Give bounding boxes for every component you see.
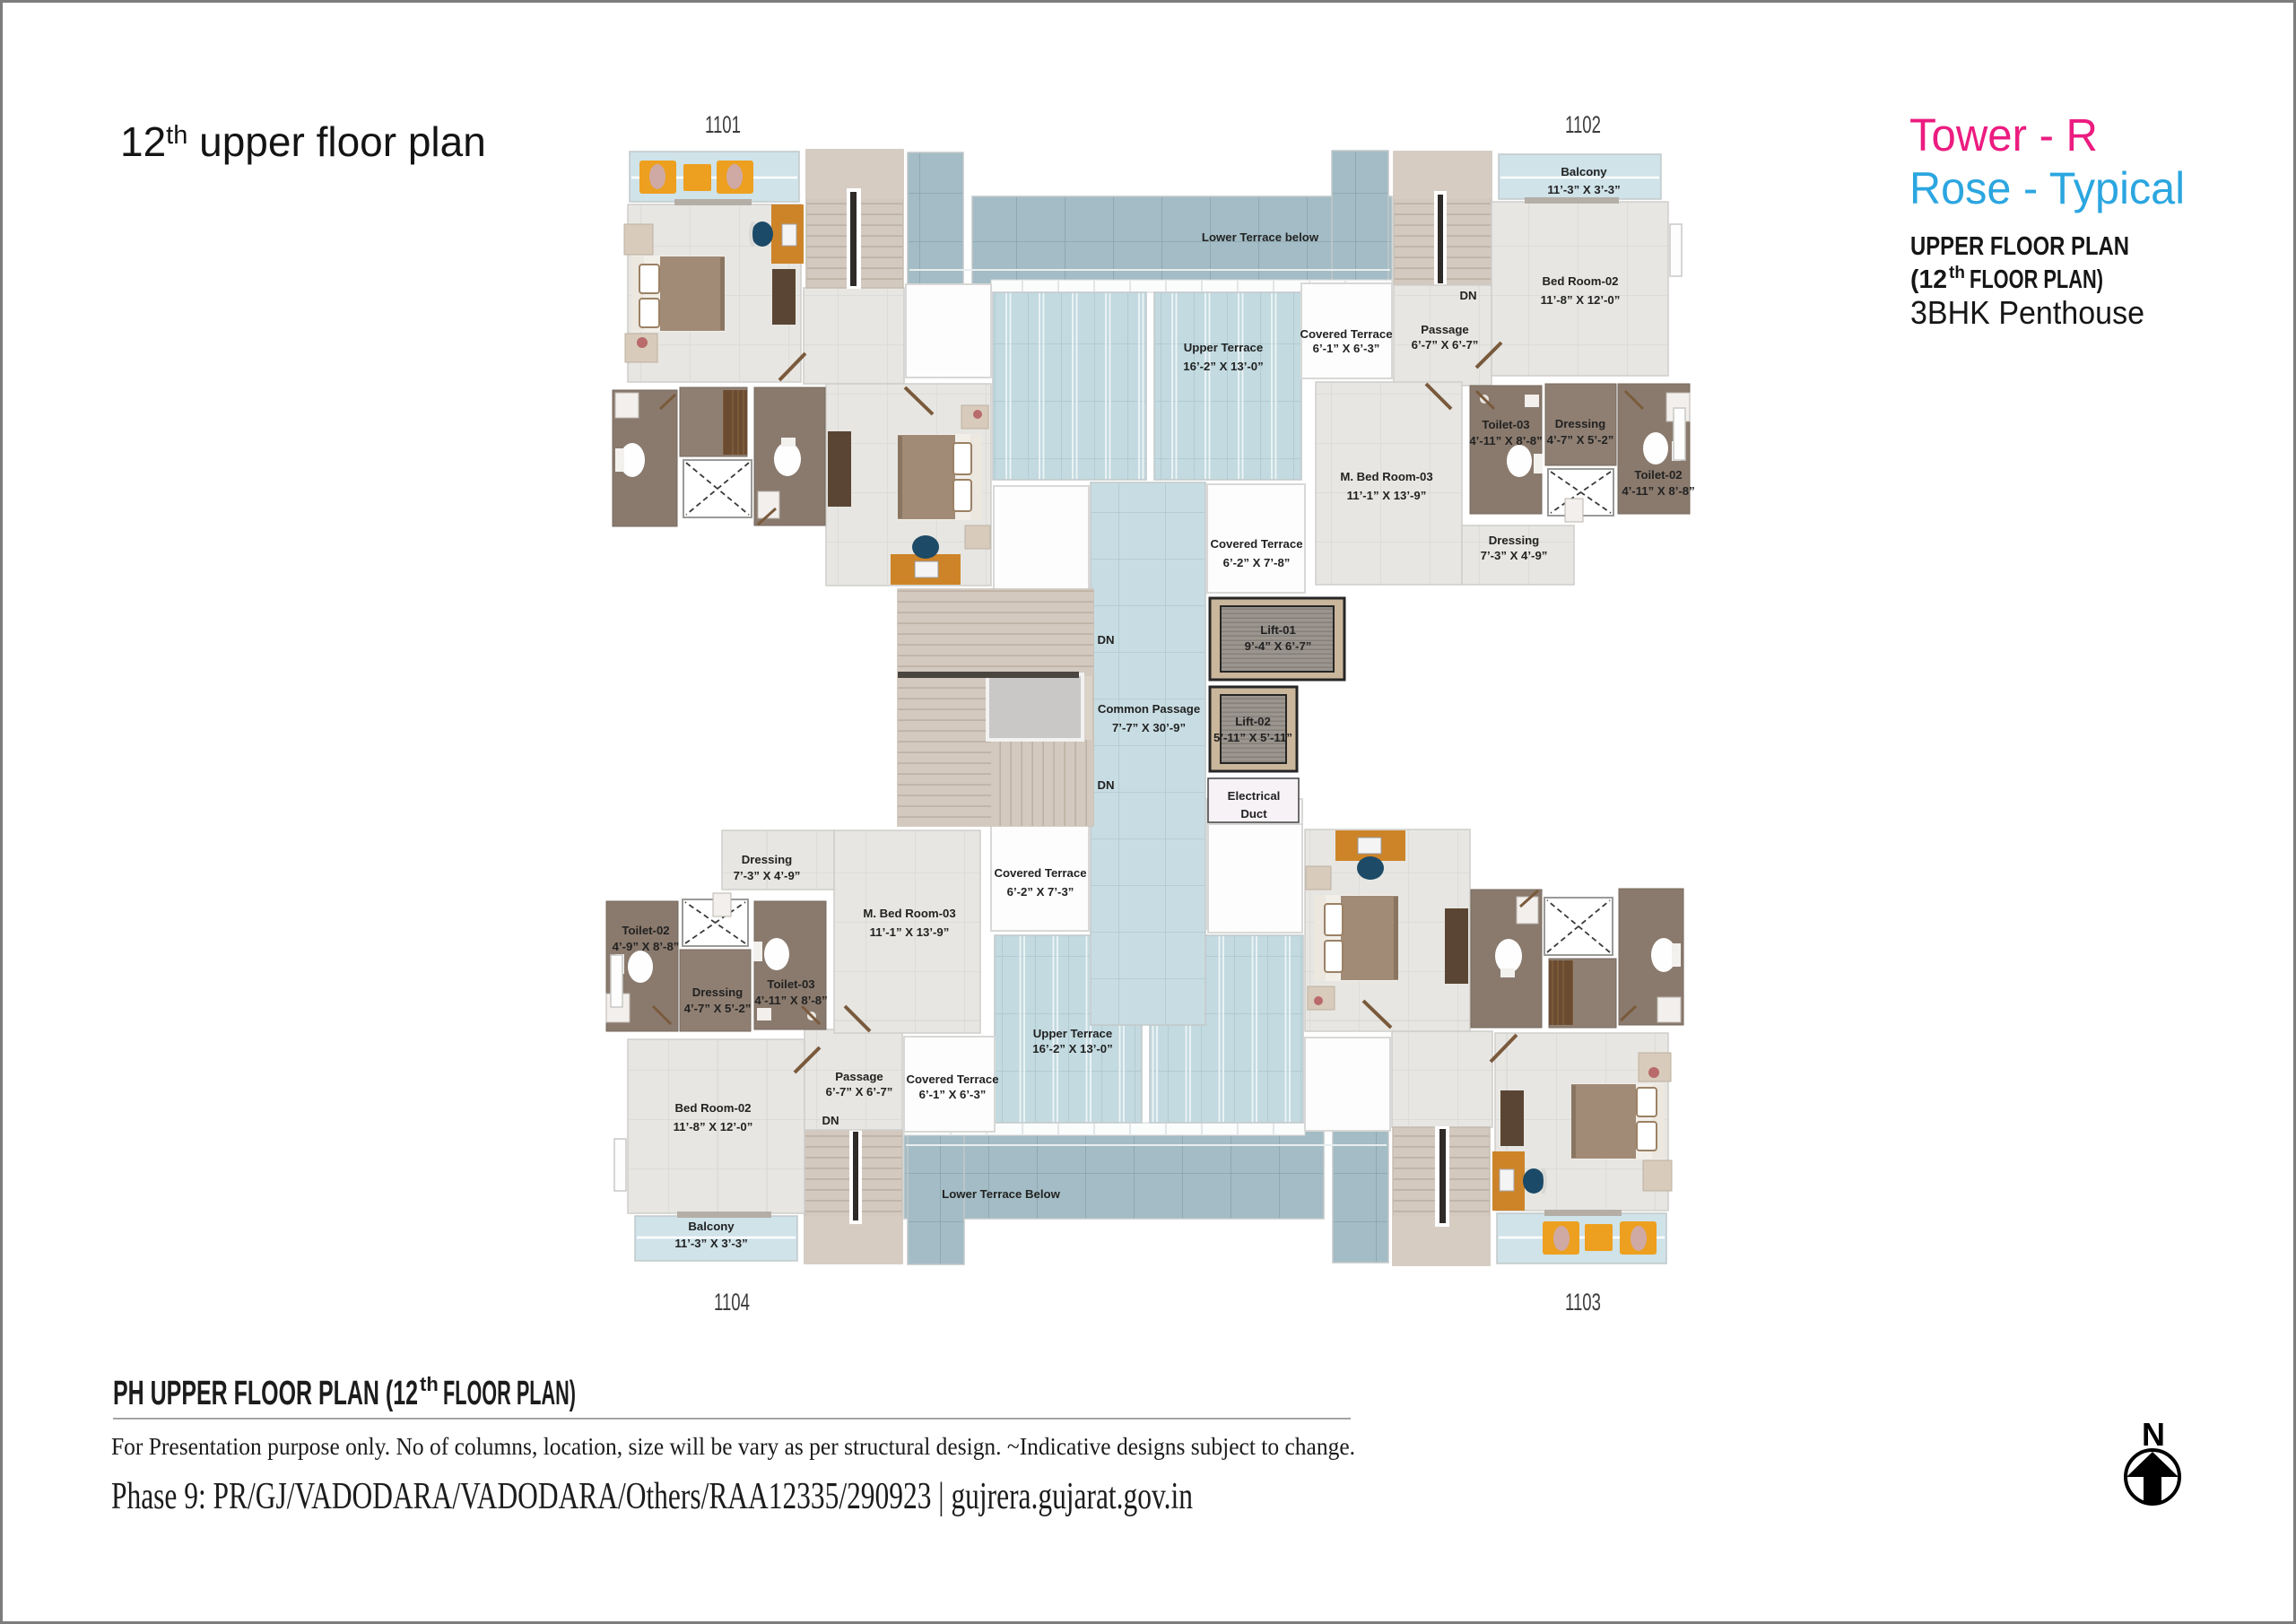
- svg-text:6’-1” X 6’-3”: 6’-1” X 6’-3”: [919, 1088, 987, 1101]
- svg-text:M. Bed Room-03: M. Bed Room-03: [863, 907, 955, 920]
- svg-text:UPPER FLOOR PLAN: UPPER FLOOR PLAN: [1910, 232, 2129, 261]
- svg-text:Duct: Duct: [1240, 807, 1267, 821]
- svg-text:4’-9” X 8’-8”: 4’-9” X 8’-8”: [613, 940, 680, 953]
- svg-text:1103: 1103: [1565, 1289, 1601, 1316]
- svg-text:1102: 1102: [1565, 111, 1601, 138]
- svg-text:Tower - R: Tower - R: [1909, 109, 2098, 161]
- svg-text:PH UPPER FLOOR PLAN (12: PH UPPER FLOOR PLAN (12: [113, 1375, 418, 1412]
- svg-text:Covered Terrace: Covered Terrace: [1300, 327, 1392, 341]
- svg-text:Phase 9: PR/GJ/VADODARA/VADODA: Phase 9: PR/GJ/VADODARA/VADODARA/Others/…: [111, 1476, 1193, 1517]
- svg-text:DN: DN: [1097, 778, 1114, 792]
- svg-text:M. Bed Room-03: M. Bed Room-03: [1340, 470, 1432, 483]
- svg-text:11’-1” X 13’-9”: 11’-1” X 13’-9”: [870, 925, 950, 939]
- svg-text:Electrical: Electrical: [1228, 789, 1281, 803]
- svg-text:1104: 1104: [714, 1289, 750, 1316]
- svg-text:Lift-01: Lift-01: [1260, 623, 1296, 637]
- svg-text:Toilet-03: Toilet-03: [767, 977, 814, 991]
- svg-text:3BHK Penthouse: 3BHK Penthouse: [1910, 294, 2144, 331]
- svg-text:Dressing: Dressing: [1489, 534, 1539, 547]
- svg-text:For Presentation purpose only.: For Presentation purpose only. No of col…: [111, 1433, 1355, 1460]
- svg-text:FLOOR PLAN): FLOOR PLAN): [1970, 265, 2103, 294]
- svg-text:11’-8” X 12’-0”: 11’-8” X 12’-0”: [674, 1120, 753, 1133]
- svg-text:4’-7” X 5’-2”: 4’-7” X 5’-2”: [1547, 433, 1614, 447]
- svg-text:Dressing: Dressing: [742, 853, 792, 866]
- svg-text:Toilet-03: Toilet-03: [1482, 418, 1529, 431]
- svg-text:N: N: [2142, 1416, 2165, 1453]
- svg-text:Rose - Typical: Rose - Typical: [1909, 163, 2185, 213]
- svg-text:Bed Room-02: Bed Room-02: [1543, 274, 1619, 288]
- svg-text:Passage: Passage: [1421, 323, 1469, 336]
- svg-text:11’-1” X 13’-9”: 11’-1” X 13’-9”: [1347, 489, 1427, 502]
- svg-text:FLOOR PLAN): FLOOR PLAN): [443, 1375, 576, 1412]
- svg-text:7’-3” X 4’-9”: 7’-3” X 4’-9”: [734, 869, 801, 882]
- svg-text:16’-2” X 13’-0”: 16’-2” X 13’-0”: [1032, 1042, 1112, 1055]
- svg-text:Covered Terrace: Covered Terrace: [1210, 537, 1302, 551]
- svg-text:DN: DN: [1459, 289, 1476, 302]
- svg-text:9’-4” X 6’-7”: 9’-4” X 6’-7”: [1245, 639, 1312, 653]
- svg-text:16’-2” X 13’-0”: 16’-2” X 13’-0”: [1183, 360, 1263, 373]
- svg-text:11’-8” X 12’-0”: 11’-8” X 12’-0”: [1541, 293, 1621, 307]
- svg-text:6’-2” X 7’-3”: 6’-2” X 7’-3”: [1007, 885, 1074, 899]
- svg-text:Common Passage: Common Passage: [1098, 702, 1200, 716]
- svg-text:4’-11” X 8’-8”: 4’-11” X 8’-8”: [754, 994, 827, 1007]
- svg-text:Covered Terrace: Covered Terrace: [906, 1073, 998, 1086]
- svg-text:DN: DN: [822, 1114, 839, 1127]
- svg-text:Lift-02: Lift-02: [1235, 715, 1271, 728]
- svg-text:th: th: [420, 1373, 439, 1395]
- svg-text:7’-3” X 4’-9”: 7’-3” X 4’-9”: [1481, 549, 1548, 562]
- svg-text:Dressing: Dressing: [692, 986, 743, 999]
- svg-text:DN: DN: [1097, 633, 1114, 647]
- svg-text:4’-11” X 8’-8”: 4’-11” X 8’-8”: [1622, 484, 1694, 498]
- svg-text:Lower Terrace below: Lower Terrace below: [1202, 230, 1319, 244]
- svg-text:6’-2” X 7’-8”: 6’-2” X 7’-8”: [1223, 556, 1291, 569]
- svg-text:(12: (12: [1910, 265, 1947, 294]
- svg-text:11’-3” X 3’-3”: 11’-3” X 3’-3”: [674, 1237, 747, 1250]
- svg-text:1101: 1101: [705, 111, 741, 138]
- svg-text:5’-11” X 5’-11”: 5’-11” X 5’-11”: [1213, 731, 1292, 744]
- svg-text:4’-11” X 8’-8”: 4’-11” X 8’-8”: [1469, 434, 1542, 447]
- svg-text:7’-7” X 30’-9”: 7’-7” X 30’-9”: [1112, 721, 1186, 734]
- svg-text:6’-7” X 6’-7”: 6’-7” X 6’-7”: [826, 1085, 893, 1099]
- svg-text:Lower Terrace Below: Lower Terrace Below: [942, 1187, 1060, 1201]
- svg-text:Toilet-02: Toilet-02: [622, 924, 669, 937]
- svg-text:Toilet-02: Toilet-02: [1634, 468, 1682, 482]
- svg-text:Dressing: Dressing: [1555, 417, 1605, 430]
- svg-text:6’-7” X 6’-7”: 6’-7” X 6’-7”: [1412, 338, 1479, 352]
- svg-text:11’-3” X 3’-3”: 11’-3” X 3’-3”: [1547, 183, 1620, 196]
- svg-text:Passage: Passage: [835, 1070, 883, 1083]
- svg-text:4’-7” X 5’-2”: 4’-7” X 5’-2”: [684, 1002, 752, 1015]
- svg-text:th: th: [1949, 264, 1965, 282]
- svg-text:Covered Terrace: Covered Terrace: [994, 866, 1086, 880]
- svg-text:Upper Terrace: Upper Terrace: [1033, 1027, 1112, 1040]
- svg-text:Balcony: Balcony: [688, 1220, 735, 1233]
- svg-text:Upper Terrace: Upper Terrace: [1184, 341, 1263, 354]
- svg-text:Bed Room-02: Bed Room-02: [675, 1101, 752, 1115]
- svg-text:6’-1” X 6’-3”: 6’-1” X 6’-3”: [1313, 342, 1380, 355]
- svg-text:Balcony: Balcony: [1561, 165, 1607, 178]
